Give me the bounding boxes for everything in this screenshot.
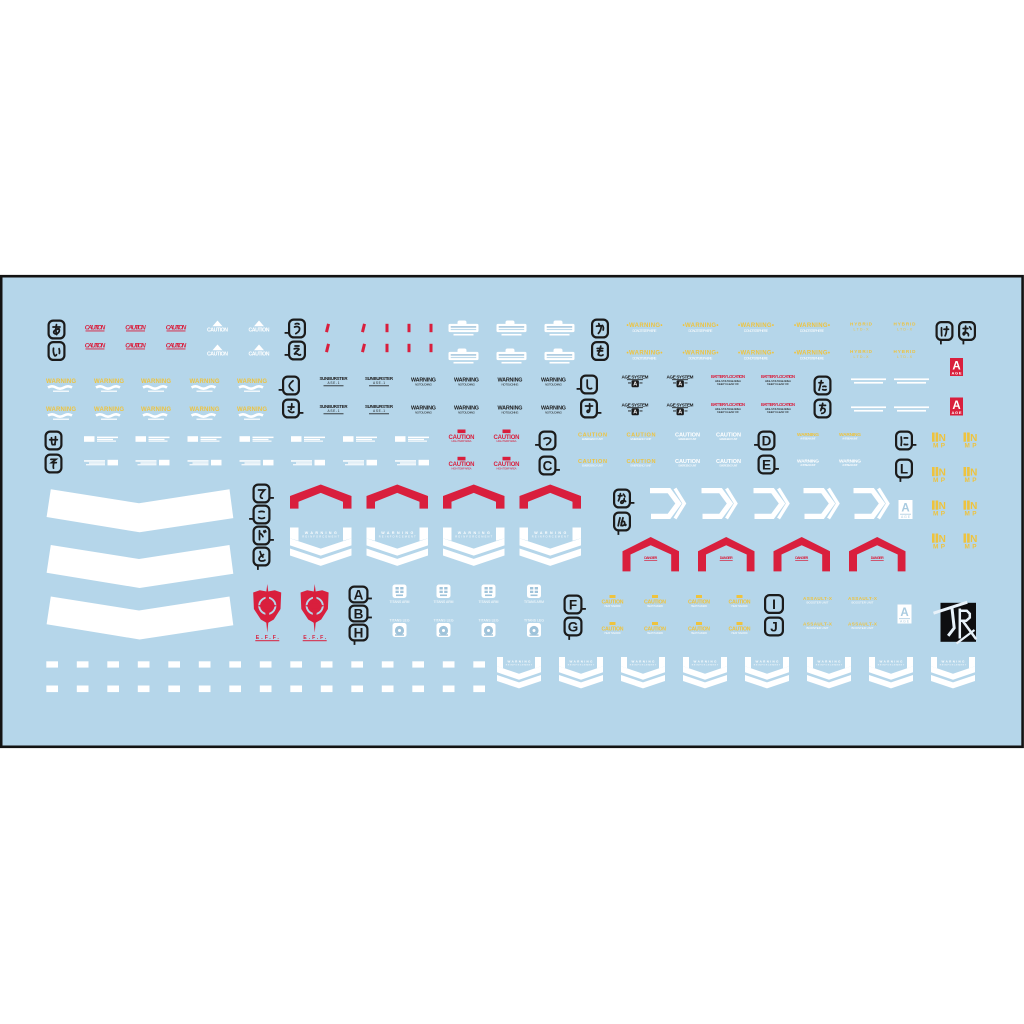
svg-text:REINFORCEMENT: REINFORCEMENT [379, 535, 416, 539]
svg-text:HIGH TEMP AREA: HIGH TEMP AREA [497, 439, 517, 443]
svg-text:NO TOUCHING: NO TOUCHING [545, 411, 563, 415]
svg-text:A: A [678, 410, 682, 416]
svg-text:CAUTION: CAUTION [249, 352, 270, 358]
svg-text:REINFORCEMENT: REINFORCEMENT [754, 665, 781, 667]
svg-text:WARNING: WARNING [190, 407, 220, 413]
svg-text:ASE-1: ASE-1 [328, 381, 340, 385]
svg-text:DO NOT STEP HERE: DO NOT STEP HERE [689, 356, 714, 360]
svg-text:NO TOUCHING: NO TOUCHING [458, 383, 476, 387]
svg-text:BOOSTER UNIT: BOOSTER UNIT [852, 601, 874, 605]
svg-text:WARNING: WARNING [570, 660, 594, 664]
svg-text:C: C [543, 458, 553, 473]
svg-text:REINFORCEMENT: REINFORCEMENT [630, 665, 657, 667]
svg-text:DANGER: DANGER [795, 556, 808, 560]
svg-text:HYBRID: HYBRID [850, 322, 873, 327]
svg-text:A: A [354, 587, 364, 602]
svg-text:HYBRID: HYBRID [894, 349, 917, 354]
svg-text:AGE SYSTEM: AGE SYSTEM [622, 375, 649, 380]
svg-text:WARNING: WARNING [46, 379, 76, 385]
svg-text:NO TOUCHING: NO TOUCHING [545, 383, 563, 387]
svg-text:DO NOT STEP HERE: DO NOT STEP HERE [800, 329, 825, 333]
svg-text:REINFORCEMENT: REINFORCEMENT [506, 665, 533, 667]
svg-text:BOOSTER UNIT: BOOSTER UNIT [852, 626, 874, 630]
svg-text:HYBRID: HYBRID [894, 322, 917, 327]
svg-text:HIGH TEMP AREA: HIGH TEMP AREA [452, 466, 472, 470]
svg-text:E: E [762, 457, 771, 472]
svg-text:HIGH TEMP AREA: HIGH TEMP AREA [452, 439, 472, 443]
svg-text:AGE: AGE [952, 371, 962, 376]
svg-text:J: J [770, 619, 778, 634]
svg-text:A: A [900, 607, 908, 619]
svg-text:ANTI BEAM UNIT: ANTI BEAM UNIT [800, 436, 816, 440]
svg-text:KEEP CLEAR OF: KEEP CLEAR OF [717, 382, 739, 386]
svg-text:CAUTION: CAUTION [166, 324, 187, 331]
svg-text:L: L [900, 461, 908, 476]
svg-text:CAUTION: CAUTION [207, 352, 228, 358]
svg-text:WARNING: WARNING [141, 407, 171, 413]
svg-text:TITANS LEG: TITANS LEG [390, 619, 410, 623]
svg-text:CAUTION: CAUTION [125, 324, 146, 331]
svg-text:A: A [633, 410, 637, 416]
svg-text:REINFORCEMENT: REINFORCEMENT [532, 535, 569, 539]
svg-text:DO NOT STEP HERE: DO NOT STEP HERE [633, 329, 658, 333]
svg-text:ANTI BEAM UNIT: ANTI BEAM UNIT [842, 463, 858, 467]
svg-text:HEAT HAZARD: HEAT HAZARD [691, 632, 707, 635]
svg-text:HEAT HAZARD: HEAT HAZARD [647, 632, 663, 635]
svg-text:ASE-1: ASE-1 [328, 409, 340, 413]
svg-text:WARNING: WARNING [632, 660, 656, 664]
svg-text:DO NOT STEP HERE: DO NOT STEP HERE [689, 329, 714, 333]
svg-text:NO TOUCHING: NO TOUCHING [458, 411, 476, 415]
svg-text:G: G [568, 619, 579, 634]
svg-text:HEAT HAZARD: HEAT HAZARD [647, 605, 663, 608]
svg-text:TITANS ARM: TITANS ARM [479, 600, 499, 604]
svg-text:NO TOUCHING: NO TOUCHING [502, 383, 520, 387]
svg-text:WARNING: WARNING [237, 407, 267, 413]
svg-text:DO NOT STEP HERE: DO NOT STEP HERE [744, 329, 769, 333]
svg-text:REINFORCEMENT: REINFORCEMENT [940, 665, 967, 667]
svg-text:B: B [354, 606, 364, 621]
svg-text:WARNING: WARNING [237, 379, 267, 385]
svg-text:REINFORCEMENT: REINFORCEMENT [302, 535, 339, 539]
svg-text:ASE-1: ASE-1 [373, 409, 385, 413]
svg-text:I: I [772, 597, 776, 612]
svg-text:WARNING: WARNING [94, 407, 124, 413]
svg-text:CAUTION: CAUTION [249, 328, 270, 334]
svg-text:REINFORCEMENT: REINFORCEMENT [455, 535, 492, 539]
svg-text:A: A [633, 382, 637, 388]
svg-text:HEAT HAZARD: HEAT HAZARD [732, 632, 748, 635]
svg-text:LTD-X: LTD-X [897, 355, 913, 359]
svg-text:AGE: AGE [901, 515, 911, 519]
svg-text:EMERGENCY UNIT: EMERGENCY UNIT [720, 437, 738, 441]
svg-text:WARNING: WARNING [942, 660, 966, 664]
svg-text:AGE SYSTEM: AGE SYSTEM [667, 403, 694, 408]
svg-text:CAUTION: CAUTION [166, 342, 187, 349]
svg-text:TITANS ARM: TITANS ARM [390, 600, 410, 604]
svg-text:KEEP CLEAR OF: KEEP CLEAR OF [717, 410, 739, 414]
svg-text:NO TOUCHING: NO TOUCHING [415, 411, 433, 415]
svg-text:TITANS ARM: TITANS ARM [524, 600, 544, 604]
svg-text:NO TOUCHING: NO TOUCHING [415, 383, 433, 387]
svg-text:CAUTION: CAUTION [207, 328, 228, 334]
svg-text:A: A [678, 382, 682, 388]
svg-text:HEAT HAZARD: HEAT HAZARD [691, 605, 707, 608]
svg-text:WARNING: WARNING [141, 379, 171, 385]
svg-text:ANTI BEAM UNIT: ANTI BEAM UNIT [842, 436, 858, 440]
svg-text:HEAT HAZARD: HEAT HAZARD [732, 605, 748, 608]
svg-text:HEAT HAZARD: HEAT HAZARD [605, 605, 621, 608]
svg-text:LTD-X: LTD-X [854, 327, 870, 331]
svg-text:DO NOT STEP HERE: DO NOT STEP HERE [800, 356, 825, 360]
svg-text:TITANS ARM: TITANS ARM [434, 600, 454, 604]
svg-text:TITANS LEG: TITANS LEG [524, 619, 544, 623]
svg-text:EMERGENCY UNIT: EMERGENCY UNIT [631, 463, 652, 467]
svg-text:D: D [762, 433, 772, 448]
svg-text:DANGER: DANGER [644, 556, 657, 560]
svg-text:WARNING: WARNING [880, 660, 904, 664]
svg-text:DO NOT STEP HERE: DO NOT STEP HERE [633, 356, 658, 360]
svg-text:WARNING: WARNING [756, 660, 780, 664]
svg-text:BOOSTER UNIT: BOOSTER UNIT [807, 626, 829, 630]
svg-text:ASE-1: ASE-1 [373, 381, 385, 385]
svg-text:F: F [569, 597, 577, 612]
svg-text:ANTI BEAM UNIT: ANTI BEAM UNIT [800, 463, 816, 467]
svg-text:EMERGENCY UNIT: EMERGENCY UNIT [582, 463, 603, 467]
svg-text:AGE SYSTEM: AGE SYSTEM [667, 375, 694, 380]
svg-text:KEEP CLEAR OF: KEEP CLEAR OF [767, 410, 789, 414]
svg-text:EMERGENCY UNIT: EMERGENCY UNIT [679, 463, 697, 467]
svg-text:NO TOUCHING: NO TOUCHING [502, 411, 520, 415]
svg-text:AGE: AGE [952, 410, 962, 415]
svg-text:HYBRID: HYBRID [850, 349, 873, 354]
svg-text:LTD-X: LTD-X [854, 355, 870, 359]
svg-text:LTD-X: LTD-X [897, 327, 913, 331]
svg-text:WARNING: WARNING [46, 407, 76, 413]
svg-text:WARNING: WARNING [694, 660, 718, 664]
svg-text:EMERGENCY UNIT: EMERGENCY UNIT [631, 437, 652, 441]
svg-text:CAUTION: CAUTION [85, 342, 106, 349]
svg-text:EMERGENCY UNIT: EMERGENCY UNIT [582, 437, 603, 441]
svg-text:TITANS LEG: TITANS LEG [479, 619, 499, 623]
svg-text:AGE SYSTEM: AGE SYSTEM [622, 403, 649, 408]
svg-text:WARNING: WARNING [190, 379, 220, 385]
svg-text:WARNING: WARNING [818, 660, 842, 664]
svg-text:A: A [901, 503, 909, 515]
svg-text:REINFORCEMENT: REINFORCEMENT [816, 665, 843, 667]
svg-text:REINFORCEMENT: REINFORCEMENT [692, 665, 719, 667]
svg-text:DANGER: DANGER [871, 556, 884, 560]
svg-text:HIGH TEMP AREA: HIGH TEMP AREA [497, 466, 517, 470]
svg-text:REINFORCEMENT: REINFORCEMENT [878, 665, 905, 667]
svg-text:EMERGENCY UNIT: EMERGENCY UNIT [720, 463, 738, 467]
svg-text:DO NOT STEP HERE: DO NOT STEP HERE [744, 356, 769, 360]
svg-text:WARNING: WARNING [508, 660, 532, 664]
svg-text:DANGER: DANGER [720, 556, 733, 560]
svg-text:AGE: AGE [900, 619, 910, 623]
svg-text:H: H [354, 625, 364, 640]
svg-text:TITANS LEG: TITANS LEG [434, 619, 454, 623]
svg-text:KEEP CLEAR OF: KEEP CLEAR OF [767, 382, 789, 386]
svg-text:CAUTION: CAUTION [85, 324, 106, 331]
svg-text:CAUTION: CAUTION [125, 342, 146, 349]
svg-text:HEAT HAZARD: HEAT HAZARD [605, 632, 621, 635]
svg-text:BOOSTER UNIT: BOOSTER UNIT [807, 601, 829, 605]
svg-text:WARNING: WARNING [94, 379, 124, 385]
svg-text:REINFORCEMENT: REINFORCEMENT [568, 665, 595, 667]
svg-text:EMERGENCY UNIT: EMERGENCY UNIT [679, 437, 697, 441]
